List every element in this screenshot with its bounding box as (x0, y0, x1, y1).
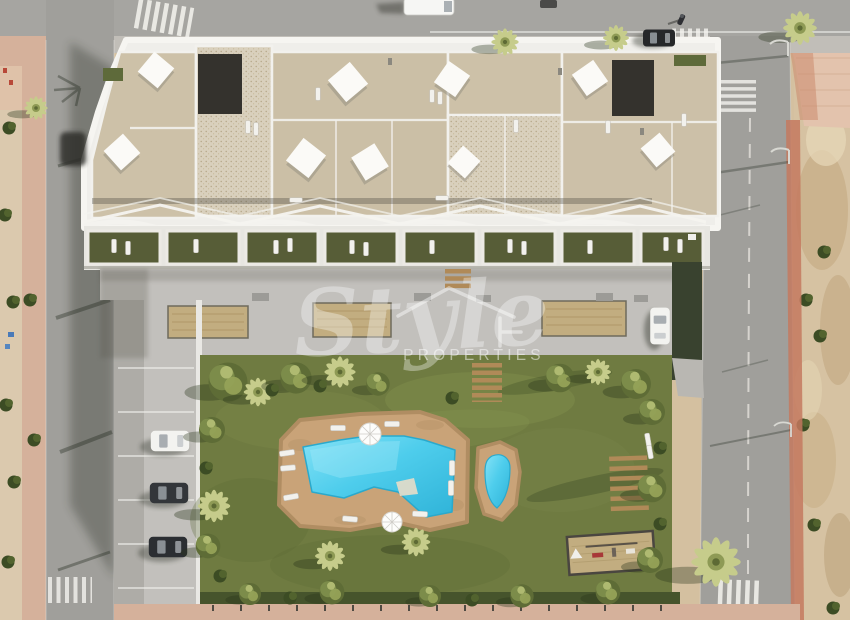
dark-canopy (60, 132, 86, 166)
play-post (612, 548, 617, 557)
van-shadow (376, 2, 404, 14)
bottom-path (114, 604, 800, 620)
left-sidewalk (22, 0, 46, 620)
van-windshield (444, 1, 452, 12)
courtyard-white-car (650, 308, 670, 345)
private-terraces (84, 226, 710, 270)
play-slide (626, 548, 635, 554)
apartment-building (60, 40, 718, 230)
parking-dark-car-1 (150, 483, 188, 503)
roof-vent (640, 128, 644, 135)
aerial-property-render: Style PROPERTIES (0, 0, 850, 620)
watermark: Style PROPERTIES (291, 257, 552, 378)
top-left-sidewalk (0, 36, 46, 66)
terrace-table (688, 234, 696, 240)
roof-hedge (674, 55, 706, 66)
roof-dark-section (612, 60, 654, 116)
roof-vent (388, 58, 392, 65)
parking-white-car (151, 431, 189, 451)
scene-canvas: Style PROPERTIES (0, 0, 850, 620)
dark-vehicle-top-edge (540, 0, 557, 8)
roof-hedge (103, 68, 123, 81)
parking-shadow (114, 300, 144, 604)
roof-vent (558, 68, 562, 75)
play-item-red (592, 552, 603, 557)
terrace-gardens (88, 231, 703, 264)
blue-bin (8, 332, 14, 337)
watermark-caps: PROPERTIES (403, 347, 545, 364)
blue-bin (5, 344, 10, 349)
roof-dark-section (198, 54, 242, 114)
